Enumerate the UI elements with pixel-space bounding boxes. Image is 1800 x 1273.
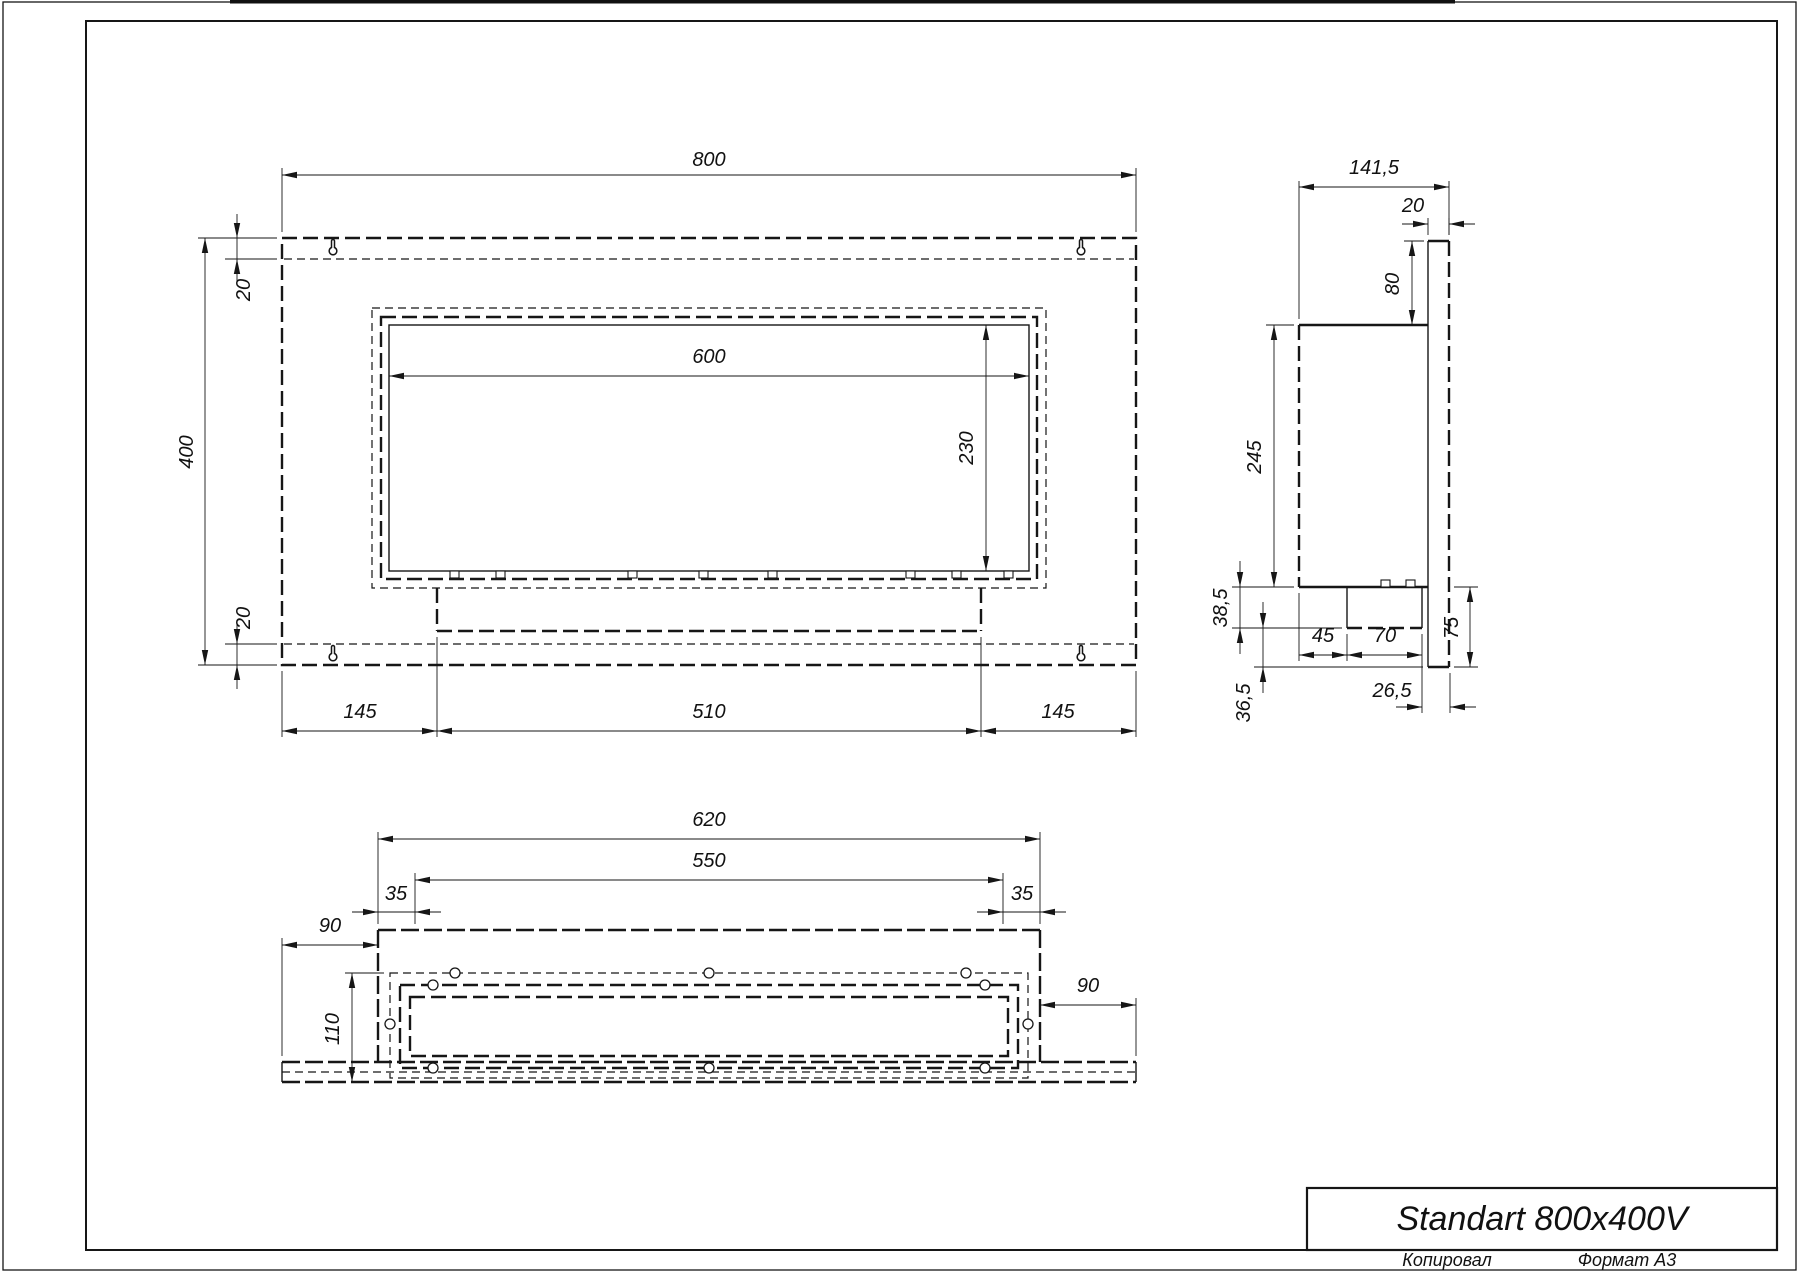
- drawing-canvas: 800 400 20 20 600 230 145 510 14: [0, 0, 1800, 1273]
- title-block-title: Standart 800x400V: [1396, 1200, 1690, 1238]
- keyhole-icon: [1077, 646, 1085, 661]
- dim-front-overall-height: 400: [176, 435, 198, 468]
- dim-front-opening-height: 230: [956, 431, 978, 465]
- dim-bottom-box-width: 620: [692, 809, 725, 831]
- dim-side-rear-offset: 26,5: [1372, 680, 1413, 702]
- dim-front-burner-length: 510: [692, 701, 725, 723]
- front-view: 800 400 20 20 600 230 145 510 14: [176, 149, 1136, 737]
- dim-side-body-height: 245: [1244, 439, 1266, 474]
- dim-bottom-depth: 110: [322, 1013, 344, 1045]
- dim-side-panel-drop: 75: [1441, 616, 1463, 639]
- side-view: 141,5 20 80 245 38,5 45 70: [1210, 157, 1478, 722]
- dim-bottom-left-inset: 35: [385, 883, 408, 905]
- title-block: Standart 800x400V: [1307, 1188, 1777, 1250]
- keyhole-icon: [1077, 240, 1085, 255]
- keyhole-icon: [329, 240, 337, 255]
- dim-side-overall-depth: 141,5: [1349, 157, 1400, 179]
- dim-front-right-margin: 145: [1041, 701, 1075, 723]
- drawing-sheet: 800 400 20 20 600 230 145 510 14: [0, 0, 1800, 1273]
- clip-tabs: [450, 571, 1013, 578]
- dim-bottom-insert-width: 550: [692, 850, 725, 872]
- dim-front-left-margin: 145: [343, 701, 377, 723]
- dim-side-burner-depth: 70: [1374, 625, 1396, 647]
- footer-format-label: Формат A3: [1578, 1250, 1677, 1270]
- dim-side-burner-offset: 45: [1312, 625, 1335, 647]
- sheet-footer: Копировал Формат A3: [1402, 1250, 1676, 1270]
- screw-holes: [385, 968, 1033, 1073]
- dim-side-burner-drop: 38,5: [1210, 588, 1232, 628]
- dim-bottom-right-flange: 90: [1077, 975, 1099, 997]
- dim-front-overall-width: 800: [692, 149, 725, 171]
- dim-front-bottom-offset: 20: [233, 607, 255, 630]
- bottom-view: 620 550 35 35 90 90 110: [282, 809, 1136, 1082]
- dim-bottom-left-flange: 90: [319, 915, 341, 937]
- dim-side-top-offset: 80: [1382, 273, 1404, 295]
- burner-tray-hidden: [437, 588, 981, 631]
- footer-copied-label: Копировал: [1402, 1250, 1492, 1270]
- drawing-frame: [3, 0, 1796, 1270]
- keyhole-icon: [329, 646, 337, 661]
- dim-side-panel-thickness: 20: [1401, 195, 1424, 217]
- dim-bottom-right-inset: 35: [1011, 883, 1034, 905]
- dim-front-top-offset: 20: [233, 279, 255, 302]
- scan-edge-strip: [230, 0, 1455, 4]
- dim-front-opening-width: 600: [692, 346, 725, 368]
- dim-side-lower-gap: 36,5: [1233, 683, 1255, 723]
